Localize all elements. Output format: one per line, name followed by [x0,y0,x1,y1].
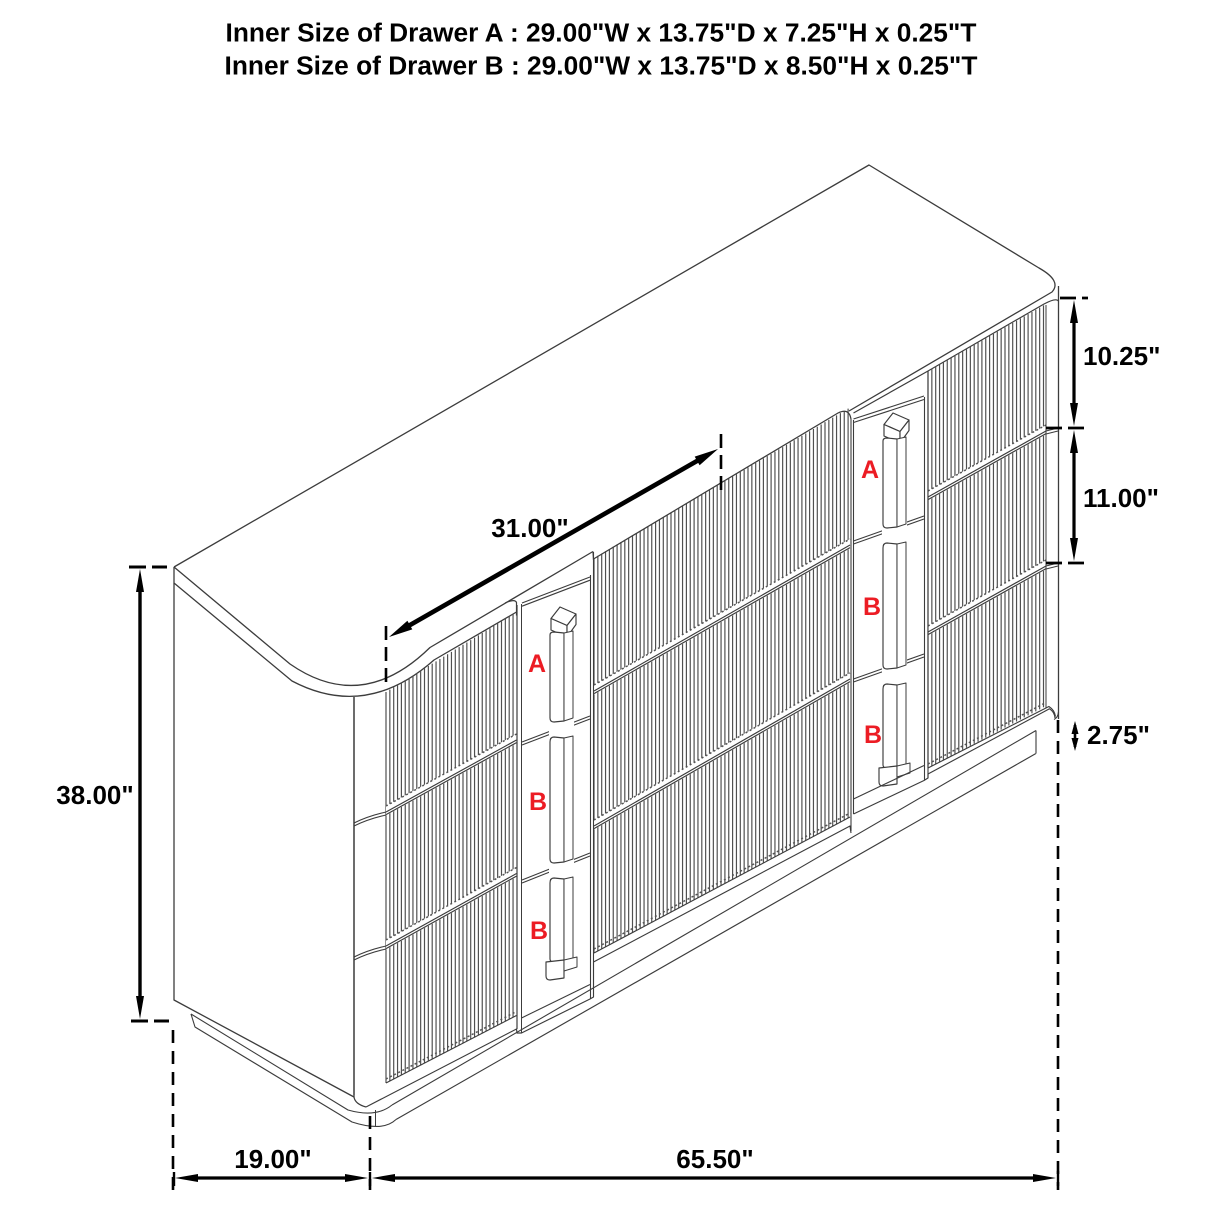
svg-text:65.50": 65.50" [676,1144,753,1174]
svg-text:A: A [528,650,546,678]
svg-text:Inner Size of Drawer B : 29.00: Inner Size of Drawer B : 29.00"W x 13.75… [225,51,978,81]
svg-text:B: B [863,593,881,621]
svg-text:B: B [864,721,882,749]
svg-text:38.00": 38.00" [56,780,133,810]
svg-text:B: B [529,788,547,816]
svg-text:19.00": 19.00" [234,1144,311,1174]
svg-text:B: B [530,917,548,945]
svg-text:A: A [861,456,879,484]
svg-text:31.00": 31.00" [491,513,568,543]
svg-text:2.75": 2.75" [1087,720,1150,750]
svg-text:11.00": 11.00" [1083,483,1159,513]
svg-text:10.25": 10.25" [1083,341,1160,371]
svg-text:Inner Size of Drawer A : 29.00: Inner Size of Drawer A : 29.00"W x 13.75… [226,18,977,48]
